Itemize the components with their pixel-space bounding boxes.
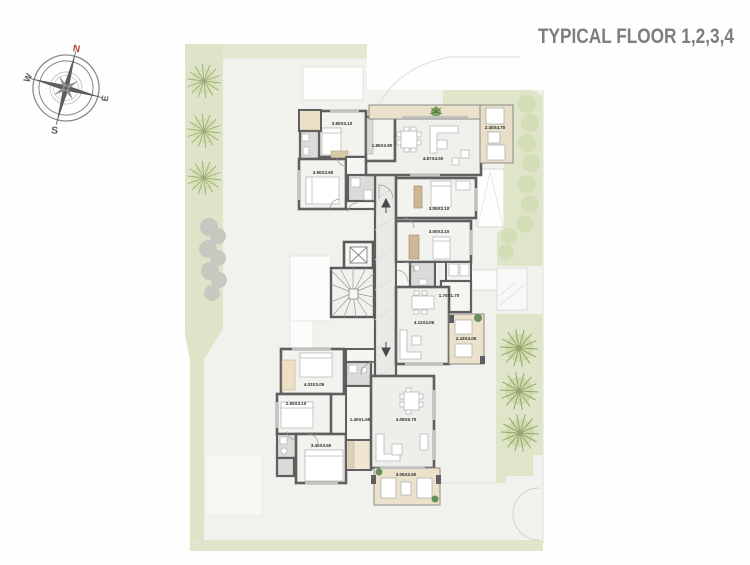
svg-text:4.03X3.05: 4.03X3.05 [304, 382, 325, 387]
svg-text:1.40X1.65: 1.40X1.65 [350, 417, 371, 422]
svg-text:3.00X3.10: 3.00X3.10 [429, 229, 450, 234]
svg-text:TYPICAL FLOOR 1,2,3,4: TYPICAL FLOOR 1,2,3,4 [538, 25, 734, 48]
svg-text:3.05X2.60: 3.05X2.60 [396, 472, 417, 477]
svg-text:2.90X3.10: 2.90X3.10 [286, 401, 307, 406]
svg-text:3.90X3.60: 3.90X3.60 [313, 170, 334, 175]
svg-text:3.05X3.10: 3.05X3.10 [429, 206, 450, 211]
svg-text:4.11X4.06: 4.11X4.06 [414, 320, 435, 325]
svg-text:4.08X5.70: 4.08X5.70 [396, 417, 417, 422]
svg-text:4.87X4.50: 4.87X4.50 [423, 156, 444, 161]
svg-text:S: S [51, 125, 59, 136]
svg-text:3.80X3.10: 3.80X3.10 [332, 121, 353, 126]
svg-text:2.40X4.70: 2.40X4.70 [485, 125, 506, 130]
svg-text:1.70X1.70: 1.70X1.70 [439, 293, 460, 298]
svg-text:2.43X4.05: 2.43X4.05 [456, 336, 477, 341]
svg-text:3.40X3.60: 3.40X3.60 [311, 443, 332, 448]
svg-text:1.85X3.90: 1.85X3.90 [372, 143, 393, 148]
